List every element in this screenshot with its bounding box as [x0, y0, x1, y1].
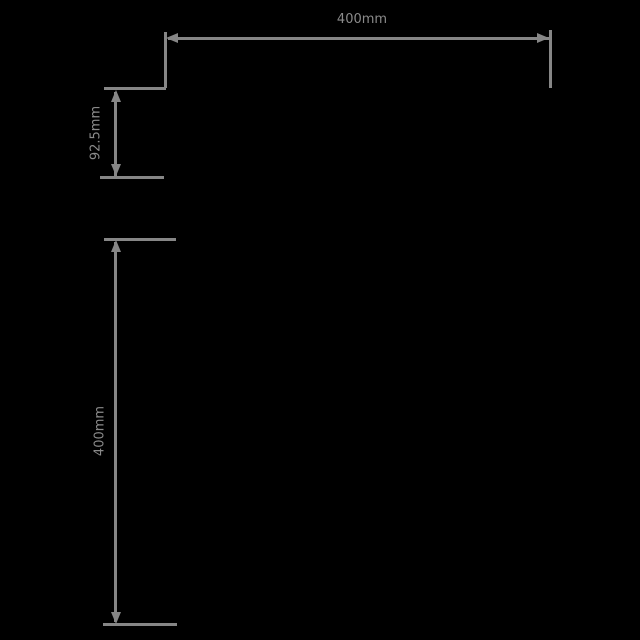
top-width-dimension-line — [168, 37, 549, 40]
arrowhead-down-icon — [111, 612, 121, 624]
upper-height-bottom-extension-line — [100, 176, 164, 179]
upper-height-dimension-label: 92.5mm — [90, 106, 103, 160]
arrowhead-right-icon — [537, 33, 549, 43]
arrowhead-up-icon — [111, 240, 121, 252]
top-width-dimension-label: 400mm — [337, 13, 387, 26]
top-width-right-extension-line — [549, 30, 552, 88]
arrowhead-down-icon — [111, 164, 121, 176]
dimension-diagram: 400mm 92.5mm 400mm — [0, 0, 640, 640]
lower-height-dimension-line — [114, 242, 117, 622]
arrowhead-up-icon — [111, 90, 121, 102]
lower-height-dimension-label: 400mm — [94, 406, 107, 456]
arrowhead-left-icon — [166, 33, 178, 43]
top-width-left-extension-line — [164, 32, 167, 88]
